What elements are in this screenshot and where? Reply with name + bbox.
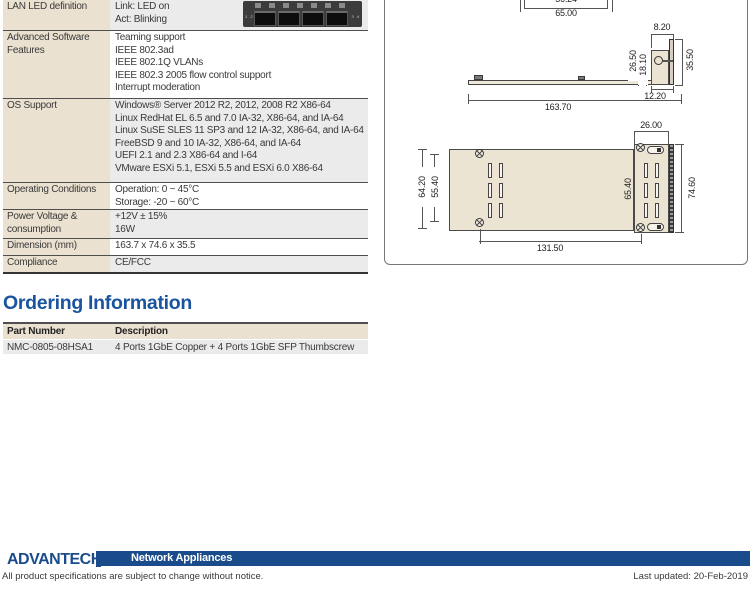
spec-label: Advanced Software Features xyxy=(3,31,110,98)
spec-value: Windows® Server 2012 R2, 2012, 2008 R2 X… xyxy=(110,99,368,182)
dimension-line xyxy=(651,89,674,90)
dim-top-outer-width: 65.00 xyxy=(524,8,608,18)
dim-bracket-total-height: 35.50 xyxy=(685,40,695,80)
spec-label: OS Support xyxy=(3,99,110,182)
vent-slot xyxy=(655,163,659,178)
extension-tick xyxy=(418,228,427,229)
dim-bracket-upper-height: 26.50 xyxy=(628,41,638,81)
vent-slot xyxy=(655,203,659,218)
extension-tick xyxy=(675,39,683,40)
spec-label: Operating Conditions xyxy=(3,183,110,209)
dimension-line xyxy=(468,100,682,101)
spec-label: Compliance xyxy=(3,256,110,272)
table-row: Dimension (mm) 163.7 x 74.6 x 35.5 xyxy=(3,239,368,256)
extension-line xyxy=(673,34,674,39)
led-strip xyxy=(255,3,350,8)
screw-mark xyxy=(636,143,645,152)
mount-slot xyxy=(647,146,664,154)
bottom-view-faceplate xyxy=(669,144,674,233)
spec-value-text: Link: LED on Act: Blinking xyxy=(115,1,169,25)
spec-label: Power Voltage & consumption xyxy=(3,210,110,238)
ordering-heading: Ordering Information xyxy=(3,292,192,315)
spec-value: CE/FCC xyxy=(110,256,368,272)
footer-last-updated: Last updated: 20-Feb-2019 xyxy=(633,571,748,582)
vent-slot xyxy=(488,183,492,198)
footer-category-label: Network Appliances xyxy=(131,551,232,566)
extension-line xyxy=(634,131,635,144)
vent-slot xyxy=(499,163,503,178)
extension-line xyxy=(668,131,669,144)
table-row: LAN LED definition Link: LED on Act: Bli… xyxy=(3,0,368,31)
dim-hole-pitch-length: 131.50 xyxy=(510,243,590,253)
vent-slot xyxy=(644,203,648,218)
slot-pin xyxy=(657,225,661,229)
description-cell: 4 Ports 1GbE Copper + 4 Ports 1GbE SFP T… xyxy=(110,340,368,354)
table-row: Power Voltage & consumption +12V ± 15% 1… xyxy=(3,210,368,239)
vent-slot xyxy=(499,203,503,218)
extension-tick xyxy=(418,149,427,150)
rj45-port xyxy=(278,11,300,26)
dim-right-span-outer: 74.60 xyxy=(687,168,697,208)
rj45-ports xyxy=(254,11,348,26)
extension-tick xyxy=(468,94,469,104)
side-view-faceplate xyxy=(669,39,674,85)
mount-slot xyxy=(647,223,664,231)
dimension-line xyxy=(634,131,669,132)
slot-pin xyxy=(657,148,661,152)
rj45-port xyxy=(254,11,276,26)
extension-tick xyxy=(675,232,684,233)
screw-mark xyxy=(475,149,484,158)
table-row: NMC-0805-08HSA1 4 Ports 1GbE Copper + 4 … xyxy=(3,339,368,354)
extension-tick xyxy=(430,221,439,222)
dimension-line xyxy=(681,144,682,233)
thumbscrew-icon xyxy=(654,56,663,65)
extension-tick xyxy=(681,94,682,104)
vent-slot xyxy=(488,203,492,218)
dim-left-span-inner: 55.40 xyxy=(430,167,440,207)
vent-slot xyxy=(644,163,648,178)
extension-tick xyxy=(430,154,439,155)
ordering-header-row: Part Number Description xyxy=(3,324,368,339)
dim-right-span-inner: 65.40 xyxy=(623,169,633,209)
dim-left-span-outer: 64.20 xyxy=(417,167,427,207)
mechanical-drawing-panel: 56.24 65.00 8.20 35.50 26.50 18.10 12.20… xyxy=(384,0,748,265)
table-row: Operating Conditions Operation: 0 ~ 45°C… xyxy=(3,183,368,210)
part-number-cell: NMC-0805-08HSA1 xyxy=(3,340,110,354)
dimension-line xyxy=(479,241,642,242)
side-view-component xyxy=(578,76,585,80)
table-row: OS Support Windows® Server 2012 R2, 2012… xyxy=(3,99,368,183)
table-row: Compliance CE/FCC xyxy=(3,256,368,274)
spec-value: Operation: 0 ~ 45°C Storage: -20 ~ 60°C xyxy=(110,183,368,209)
spec-label: Dimension (mm) xyxy=(3,239,110,255)
side-view-component xyxy=(474,75,483,80)
vent-slot xyxy=(655,183,659,198)
dim-bracket-width: 26.00 xyxy=(626,120,676,130)
extension-line xyxy=(651,34,652,48)
dim-board-length: 163.70 xyxy=(518,102,598,112)
spec-value: Teaming support IEEE 802.3ad IEEE 802.1Q… xyxy=(110,31,368,98)
vent-slot xyxy=(644,183,648,198)
vent-slot xyxy=(499,183,503,198)
dim-tab-width: 8.20 xyxy=(640,22,684,32)
extension-tick xyxy=(675,144,684,145)
port-number-right: 3 4 xyxy=(351,11,360,24)
lan-ports-photo: 1 2 3 4 xyxy=(243,1,362,27)
footer-disclaimer: All product specifications are subject t… xyxy=(2,571,263,582)
side-view-bracket xyxy=(651,50,669,85)
spec-value: +12V ± 15% 16W xyxy=(110,210,368,238)
bottom-view-bracket xyxy=(634,144,669,233)
ordering-table: Part Number Description NMC-0805-08HSA1 … xyxy=(3,322,368,354)
dimension-line xyxy=(682,39,683,86)
extension-line xyxy=(520,0,521,12)
port-number-left: 1 2 xyxy=(245,11,254,24)
extension-line xyxy=(641,234,642,244)
dimension-line xyxy=(651,34,674,35)
dim-top-inner-width: 56.24 xyxy=(524,0,608,4)
footer-category-bar: Network Appliances xyxy=(101,551,750,566)
column-header-part-number: Part Number xyxy=(3,324,110,339)
screw-mark xyxy=(636,223,645,232)
extension-line xyxy=(612,0,613,12)
dim-bracket-lower-height: 18.10 xyxy=(638,45,648,85)
spec-table: LAN LED definition Link: LED on Act: Bli… xyxy=(3,0,368,274)
advantech-logo: ADVANTECH xyxy=(7,551,102,569)
vent-slot xyxy=(488,163,492,178)
spec-label: LAN LED definition xyxy=(3,0,110,30)
column-header-description: Description xyxy=(110,324,368,339)
screw-mark xyxy=(475,218,484,227)
rj45-port xyxy=(302,11,324,26)
spec-value: 163.7 x 74.6 x 35.5 xyxy=(110,239,368,255)
rj45-port xyxy=(326,11,348,26)
thumbscrew-stem xyxy=(663,60,673,62)
table-row: Advanced Software Features Teaming suppo… xyxy=(3,31,368,99)
extension-tick xyxy=(675,85,683,86)
spec-value: Link: LED on Act: Blinking 1 2 3 4 xyxy=(110,0,368,30)
